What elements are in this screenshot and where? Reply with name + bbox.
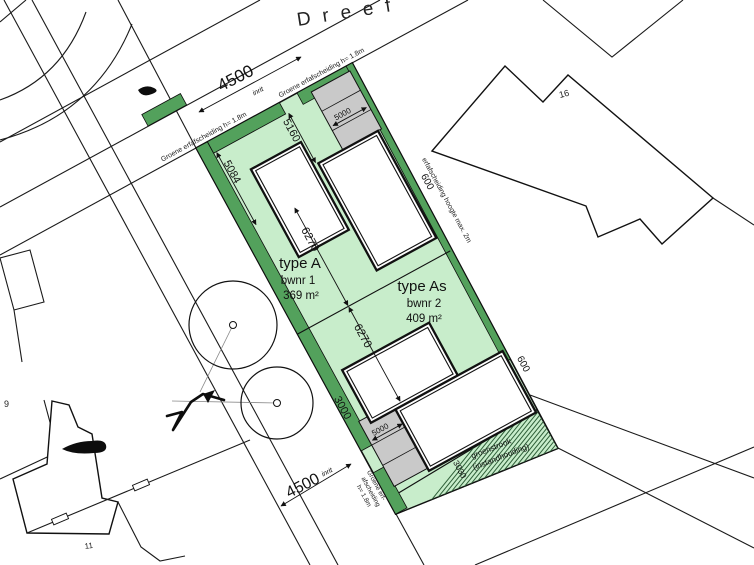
type-as-area: 409 m² <box>406 313 442 325</box>
parcel-label-type-a: type A bwnr 1 369 m² <box>279 255 321 302</box>
type-as-bwnr: bwnr 2 <box>407 298 442 310</box>
site-plan: 5000 5000 5160 5084 6270 6270 600 600 <box>0 0 754 565</box>
type-a-area: 369 m² <box>283 290 319 302</box>
type-a-bwnr: bwnr 1 <box>281 275 316 287</box>
tree-trunk-small <box>274 400 281 407</box>
parcel-number-9: 9 <box>4 399 9 409</box>
tree-trunk-large <box>230 322 237 329</box>
type-as-title: type As <box>397 278 446 295</box>
site-plan-canvas: 5000 5000 5160 5084 6270 6270 600 600 <box>0 0 754 565</box>
type-a-title: type A <box>279 255 321 272</box>
